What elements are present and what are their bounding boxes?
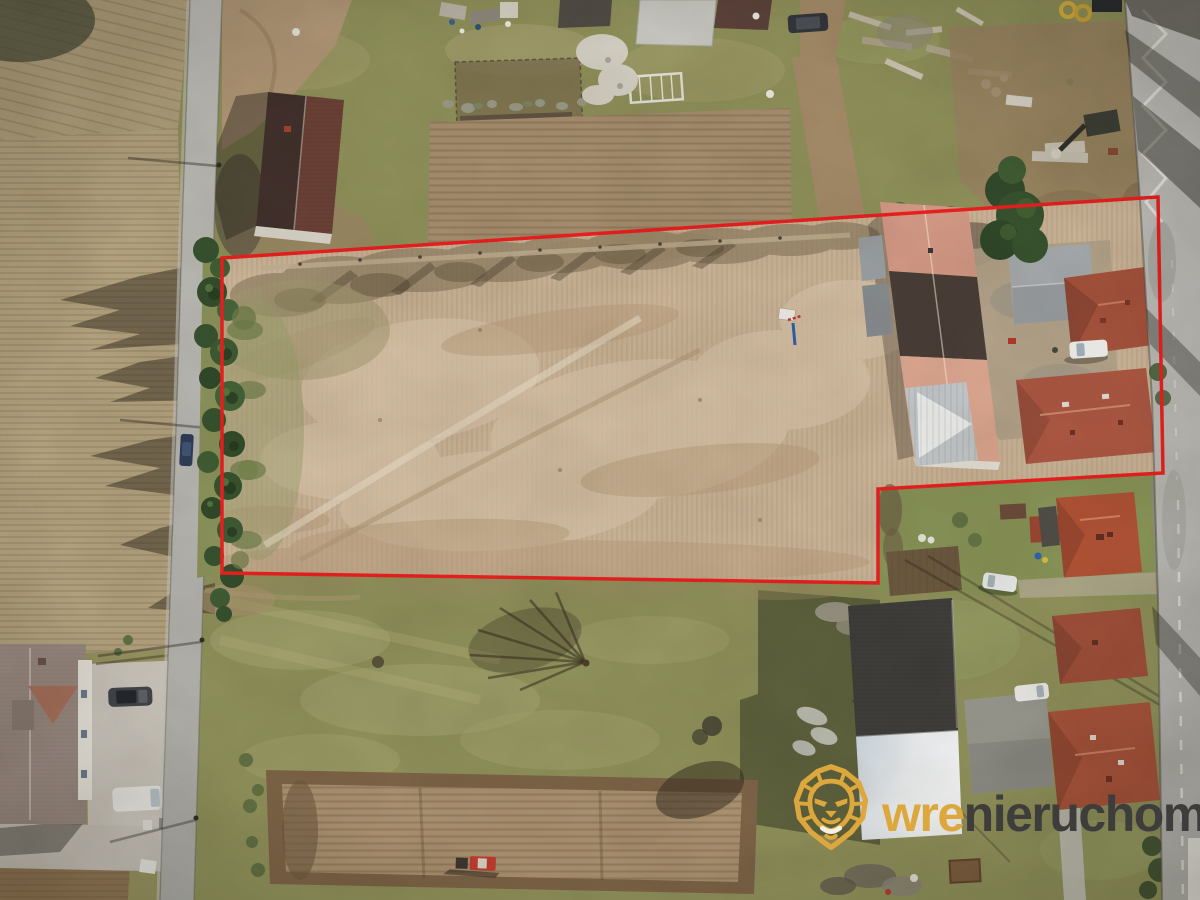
aerial-photo: wrenieruchomości — [0, 0, 1200, 900]
aerial-photo-scene — [0, 0, 1200, 900]
vignette — [0, 0, 1200, 900]
